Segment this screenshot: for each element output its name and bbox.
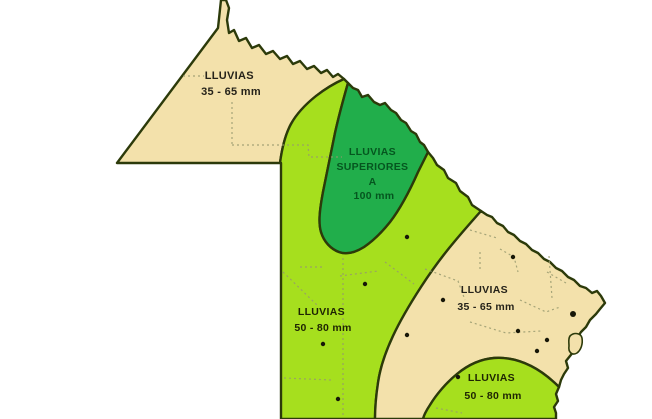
locality-dot (456, 375, 460, 379)
center-label-line2: 50 - 80 mm (294, 322, 351, 334)
coastal-island (569, 334, 583, 354)
locality-dot (511, 255, 515, 259)
north-center-label-line3: A (369, 176, 377, 188)
map-canvas: LLUVIAS 35 - 65 mm LLUVIAS SUPERIORES A … (0, 0, 652, 419)
locality-dot (441, 298, 445, 302)
southeast-label-line1: LLUVIAS (468, 372, 515, 384)
locality-dot (336, 397, 340, 401)
locality-dot (363, 282, 367, 286)
southeast-label-line2: 50 - 80 mm (464, 390, 521, 402)
center-label-line1: LLUVIAS (298, 306, 345, 318)
locality-dot (535, 349, 539, 353)
north-center-label-line1: LLUVIAS (349, 146, 396, 158)
locality-dot (516, 329, 520, 333)
locality-dot (545, 338, 549, 342)
east-label-line2: 35 - 65 mm (457, 301, 514, 313)
northwest-label-line2: 35 - 65 mm (201, 86, 261, 98)
northwest-label-line1: LLUVIAS (205, 70, 254, 82)
locality-dot (570, 311, 576, 317)
locality-dot (405, 333, 409, 337)
north-center-label-line2: SUPERIORES (336, 161, 408, 173)
rainfall-map: LLUVIAS 35 - 65 mm LLUVIAS SUPERIORES A … (0, 0, 652, 419)
locality-dot (405, 235, 409, 239)
locality-dot (321, 342, 325, 346)
north-center-label-line4: 100 mm (354, 190, 395, 202)
east-label-line1: LLUVIAS (461, 284, 508, 296)
